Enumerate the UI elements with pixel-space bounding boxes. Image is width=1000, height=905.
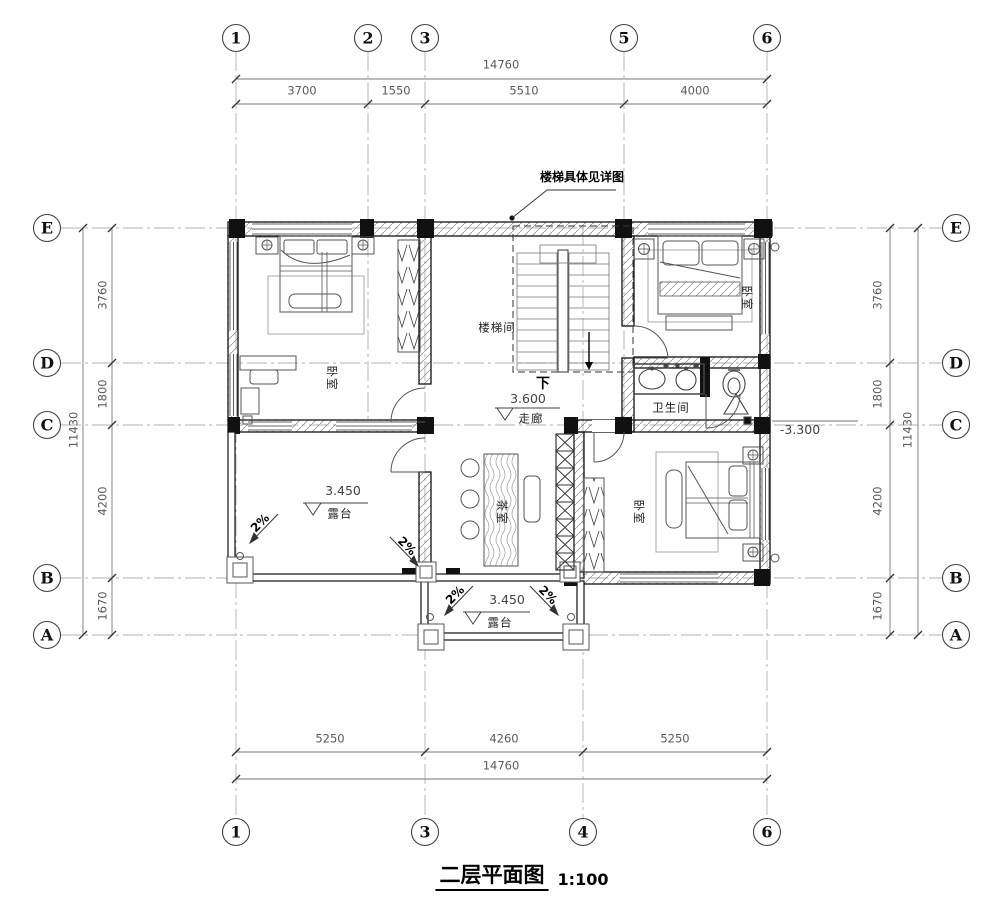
wardrobe-x (556, 434, 574, 570)
drawing-scale: 1:100 (558, 872, 609, 888)
room-label-corridor: 走廊 (519, 413, 544, 425)
grid-bubble-top-5: 5 (618, 29, 629, 48)
grid-bubble-right-C: C (950, 416, 963, 435)
room-label-bedroom3: 卧室 (632, 500, 644, 525)
drawing-title: 二层平面图 (436, 865, 549, 891)
dim-bottom-seg-2: 4260 (489, 733, 518, 745)
grid-bubble-right-D: D (949, 354, 963, 373)
room-label-terrace-left: 露台 (328, 508, 353, 520)
grid-bubble-top-1: 1 (230, 29, 241, 48)
bedroom1-furniture (240, 236, 420, 424)
grid-bubble-bottom-1: 1 (230, 823, 241, 842)
dim-left-seg-2: 1800 (97, 379, 109, 408)
grid-bubble-right-A: A (950, 626, 962, 645)
grid-bubble-left-A: A (41, 626, 53, 645)
room-label-tearoom: 茶室 (495, 500, 507, 525)
elevation-terrace-left: 3.450 (325, 485, 361, 498)
dim-bottom-seg-1: 5250 (315, 733, 344, 745)
dim-bottom-seg-3: 5250 (660, 733, 689, 745)
dim-bottom-total: 14760 (483, 760, 520, 772)
grid-bubble-bottom-3: 3 (419, 823, 430, 842)
dim-left-seg-1: 3760 (97, 280, 109, 309)
wardrobe-1 (398, 240, 420, 352)
stairs-down-label: 下 (536, 377, 550, 391)
elevation-corridor: 3.600 (510, 393, 546, 406)
wardrobe-3 (584, 478, 604, 572)
floor-plan-canvas: 1 2 3 5 6 1 3 4 6 E D C B A E D C B A 14… (0, 0, 1000, 905)
bedroom3-furniture (584, 447, 763, 572)
grid-bubble-left-E: E (41, 219, 53, 238)
dim-top-seg-1: 3700 (287, 85, 316, 97)
grid-bubble-right-E: E (950, 219, 962, 238)
elevation-terrace-bottom: 3.450 (489, 594, 525, 607)
floor-drain (744, 417, 751, 424)
grid-bubble-right-B: B (949, 569, 963, 588)
dim-top-total: 14760 (483, 59, 520, 71)
dim-left-seg-3: 4200 (97, 486, 109, 515)
dim-right-seg-3: 4200 (872, 486, 884, 515)
rain-pipe (771, 243, 779, 251)
grid-bubble-bottom-4: 4 (577, 823, 588, 842)
dim-left-total: 11430 (68, 412, 80, 449)
grid-bubble-left-B: B (40, 569, 54, 588)
dim-top-seg-2: 1550 (381, 85, 410, 97)
room-label-bedroom1: 卧室 (325, 366, 337, 391)
stair-detail-note: 楼梯具体见详图 (540, 171, 624, 183)
dim-left-seg-4: 1670 (97, 591, 109, 620)
room-label-bedroom2: 卧室 (740, 286, 752, 311)
note-leader (510, 190, 616, 220)
dim-right-seg-4: 1670 (872, 591, 884, 620)
stairwell-group (513, 226, 633, 372)
room-label-terrace-bottom: 露台 (488, 617, 513, 629)
rain-pipe (771, 554, 779, 562)
dim-top-seg-4: 4000 (680, 85, 709, 97)
dim-right-total: 11430 (902, 412, 914, 449)
grid-bubble-top-3: 3 (419, 29, 430, 48)
elevation-right-side: -3.300 (780, 424, 820, 437)
stairs-down-arrow (585, 362, 593, 370)
grid-bubble-left-D: D (40, 354, 54, 373)
dim-right-seg-2: 1800 (872, 379, 884, 408)
bathroom-fixtures (634, 364, 751, 424)
room-label-bathroom: 卫生间 (652, 402, 690, 414)
grid-bubble-left-C: C (41, 416, 54, 435)
dim-top-seg-3: 5510 (509, 85, 538, 97)
bedroom2-furniture (634, 236, 764, 330)
grid-bubbles (34, 25, 970, 846)
room-label-stairwell: 楼梯间 (478, 322, 516, 334)
grid-bubble-bottom-6: 6 (761, 823, 772, 842)
grid-bubble-top-2: 2 (362, 29, 373, 48)
dim-right-seg-1: 3760 (872, 280, 884, 309)
grid-bubble-top-6: 6 (761, 29, 772, 48)
